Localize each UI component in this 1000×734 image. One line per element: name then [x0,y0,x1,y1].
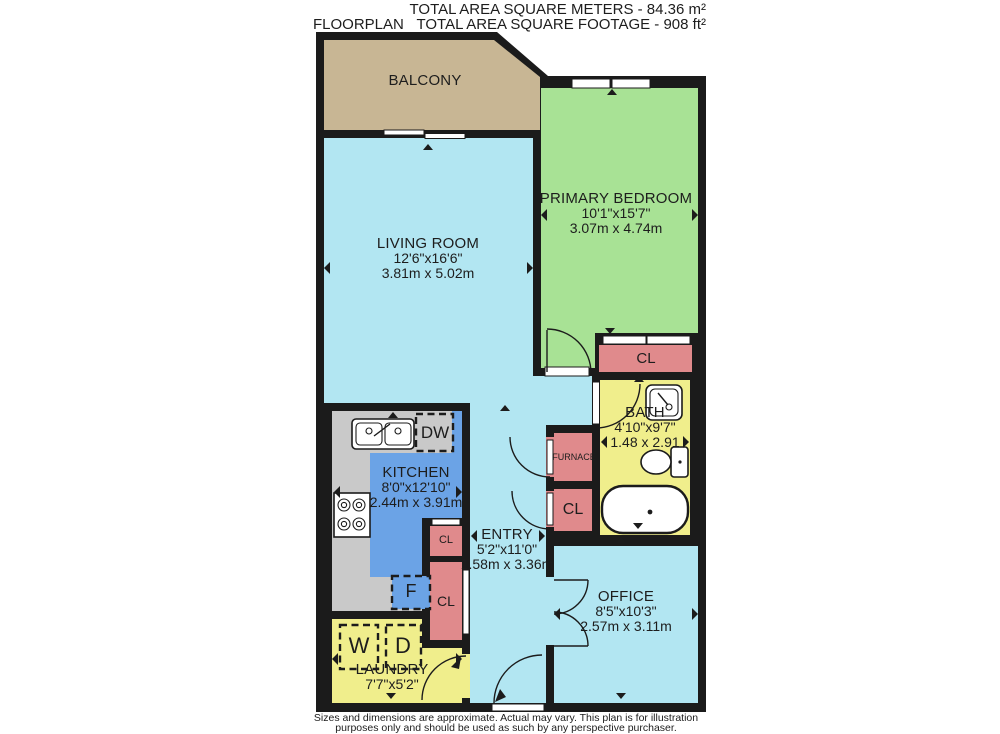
room-dims-imperial: 7'7"x5'2" [356,677,429,691]
kitchen-sink-icon [352,419,414,449]
room-dims-imperial: 8'5"x10'3" [580,604,672,618]
hall-closet-small-label: CL [439,534,453,546]
room-dims-metric: 3.07m x 4.74m [540,221,692,235]
furnace-closet-label: CL [563,501,583,519]
room-dims-metric: 3.81m x 5.02m [377,266,479,280]
floorplan-drawing [0,0,1000,734]
room-dims-metric: 2.44m x 3.91m [370,495,463,509]
stove-icon [334,493,370,537]
room-name: BALCONY [388,73,461,88]
balcony-label: BALCONY [388,73,461,88]
bathtub-icon [602,486,688,533]
room-dims-imperial: 5'2"x11'0" [461,542,554,556]
room-dims-metric: 1.58m x 3.36m [461,557,554,571]
room-name: ENTRY [461,527,554,542]
office-door-gap [546,577,554,645]
dishwasher-label: DW [421,423,449,443]
primary-bedroom-label: PRIMARY BEDROOM 10'1"x15'7" 3.07m x 4.74… [540,191,692,235]
room-dims-metric: 1.48 x 2.91 [610,435,679,449]
living-room-label: LIVING ROOM 12'6"x16'6" 3.81m x 5.02m [377,236,479,280]
room-name: KITCHEN [370,465,463,480]
toilet-icon [641,447,688,477]
room-dims-imperial: 10'1"x15'7" [540,206,692,220]
floorplan-page: FLOORPLAN TOTAL AREA SQUARE METERS - 84.… [0,0,1000,734]
laundry-door-gap [462,654,470,698]
hall-closet-tall-label: CL [437,593,455,609]
office-label: OFFICE 8'5"x10'3" 2.57m x 3.11m [580,589,672,633]
furnace-label: FURNACE [552,452,596,462]
bedroom-closet-sliders [603,336,690,344]
fridge-label: F [406,581,417,602]
page-title: FLOORPLAN [313,16,404,33]
room-name: LAUNDRY [356,662,429,677]
total-area-feet: TOTAL AREA SQUARE FOOTAGE - 908 ft² [416,16,706,33]
disclaimer-line2: purposes only and should be used as such… [314,723,698,733]
room-dims-imperial: 12'6"x16'6" [377,251,479,265]
disclaimer: Sizes and dimensions are approximate. Ac… [314,713,698,733]
room-name: LIVING ROOM [377,236,479,251]
room-dims-metric: 2.57m x 3.11m [580,619,672,633]
bath-label: BATH 4'10"x9'7" 1.48 x 2.91 [610,405,679,449]
room-name: BATH [610,405,679,420]
room-dims-imperial: 8'0"x12'10" [370,480,463,494]
hall-closet-tall-door-leaf [463,570,469,634]
dryer-label: D [395,633,411,659]
washer-label: W [349,633,370,659]
hall-closet-small-slider [432,519,460,525]
room-dims-imperial: 4'10"x9'7" [610,420,679,434]
laundry-label: LAUNDRY 7'7"x5'2" [356,662,429,692]
bedroom-closet-label: CL [636,350,655,367]
bedroom-door-threshold [545,367,589,376]
entry-door-threshold [492,704,544,711]
entry-label: ENTRY 5'2"x11'0" 1.58m x 3.36m [461,527,554,571]
room-name: OFFICE [580,589,672,604]
kitchen-label: KITCHEN 8'0"x12'10" 2.44m x 3.91m [370,465,463,509]
room-name: PRIMARY BEDROOM [540,191,692,206]
bedroom-floor-nook [541,333,595,368]
